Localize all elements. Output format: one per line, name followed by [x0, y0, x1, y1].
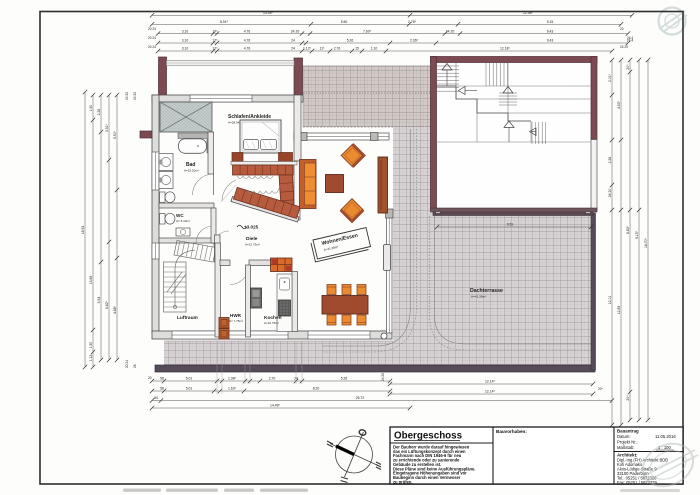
svg-text:Bauantrag: Bauantrag: [617, 429, 639, 434]
svg-text:3.51⁵: 3.51⁵: [105, 123, 109, 132]
svg-text:8.20: 8.20: [313, 387, 320, 391]
svg-text:20⁶: 20⁶: [598, 387, 604, 391]
svg-text:8.91⁵: 8.91⁵: [220, 20, 229, 24]
svg-text:24.4: 24.4: [627, 36, 633, 40]
svg-text:20: 20: [148, 376, 152, 380]
svg-text:Maßstab:: Maßstab:: [617, 445, 634, 450]
svg-text:Luftraum: Luftraum: [177, 315, 198, 321]
svg-text:13.69: 13.69: [89, 276, 93, 285]
svg-text:2.26: 2.26: [608, 157, 612, 164]
svg-text:26: 26: [133, 364, 137, 368]
svg-text:A=10.75m²: A=10.75m²: [264, 321, 279, 325]
svg-text:1.12: 1.12: [89, 355, 93, 362]
svg-text:HWR: HWR: [230, 313, 242, 318]
svg-text:Bauvorhaben:: Bauvorhaben:: [496, 429, 527, 434]
svg-text:4.76: 4.76: [244, 39, 251, 43]
svg-text:5.54: 5.54: [97, 297, 101, 304]
svg-text:A=19.20m²: A=19.20m²: [184, 169, 199, 173]
svg-text:1.12⁵: 1.12⁵: [303, 47, 312, 51]
svg-text:17⁵: 17⁵: [212, 39, 218, 43]
svg-text:17⁵: 17⁵: [212, 47, 218, 51]
svg-text:11⁵: 11⁵: [320, 47, 326, 51]
svg-text:5.50⁵: 5.50⁵: [113, 130, 117, 139]
svg-text:8.83⁵: 8.83⁵: [626, 225, 630, 234]
svg-text:24 20: 24 20: [608, 189, 612, 198]
svg-text:9.51: 9.51: [507, 223, 514, 227]
svg-text:20⁶: 20⁶: [626, 395, 630, 401]
svg-text:2.26: 2.26: [97, 109, 101, 116]
svg-text:1.63⁵: 1.63⁵: [228, 387, 237, 391]
svg-text:25.72: 25.72: [356, 396, 365, 400]
svg-text:6.82⁵: 6.82⁵: [105, 300, 109, 309]
svg-text:58: 58: [160, 377, 164, 381]
svg-text:2.76⁵: 2.76⁵: [408, 20, 417, 24]
svg-text:5.50: 5.50: [341, 20, 348, 24]
svg-text:Dachterrasse: Dachterrasse: [470, 288, 503, 294]
svg-text:18.70⁵: 18.70⁵: [644, 237, 648, 247]
svg-text:24 20: 24 20: [446, 29, 455, 33]
svg-text:Diele: Diele: [246, 236, 258, 242]
svg-text:4.76: 4.76: [244, 47, 251, 51]
svg-text:Schlafen/Ankleide: Schlafen/Ankleide: [228, 114, 271, 120]
svg-text:4.76: 4.76: [244, 29, 251, 33]
svg-text:4.88⁵: 4.88⁵: [113, 305, 117, 314]
svg-text:4.53⁵: 4.53⁵: [617, 100, 621, 109]
svg-text:24 20: 24 20: [125, 92, 129, 100]
svg-text:12.14⁵: 12.14⁵: [485, 380, 495, 384]
svg-text:15: 15: [355, 47, 359, 51]
svg-text:12.48⁵: 12.48⁵: [523, 11, 533, 15]
svg-text:1.50: 1.50: [89, 342, 93, 349]
svg-text:18.93: 18.93: [81, 226, 85, 235]
svg-text:84: 84: [154, 396, 158, 400]
svg-text:A=41.30m²: A=41.30m²: [471, 295, 486, 299]
svg-text:20 24: 20 24: [148, 36, 156, 40]
svg-text:24: 24: [291, 39, 295, 43]
svg-text:9.15⁵: 9.15⁵: [635, 230, 639, 239]
svg-text:5.01: 5.01: [186, 387, 193, 391]
svg-text:24 20: 24 20: [620, 45, 628, 49]
svg-text:2.76: 2.76: [334, 47, 341, 51]
svg-text:1.38⁵: 1.38⁵: [228, 377, 237, 381]
svg-text:Projekt Nr.:: Projekt Nr.:: [617, 440, 638, 445]
svg-text:zu prüfen.: zu prüfen.: [393, 479, 413, 484]
svg-text:1.10: 1.10: [371, 47, 378, 51]
svg-text:3.10: 3.10: [182, 47, 189, 51]
svg-text:24 20: 24 20: [381, 373, 385, 381]
svg-text:2.36⁵: 2.36⁵: [410, 39, 419, 43]
svg-text:20 24: 20 24: [125, 360, 129, 368]
svg-text:24 20: 24 20: [133, 92, 137, 100]
svg-text:12.89: 12.89: [617, 306, 621, 315]
svg-text:2.01⁵: 2.01⁵: [608, 73, 612, 82]
svg-text:24 20: 24 20: [291, 29, 300, 33]
svg-text:2.70: 2.70: [269, 377, 276, 381]
svg-text:20 24: 20 24: [148, 45, 156, 49]
svg-text:20: 20: [620, 27, 624, 31]
svg-text:3.10: 3.10: [182, 39, 189, 43]
svg-text:1.50: 1.50: [89, 105, 93, 112]
svg-text:11.05.2016: 11.05.2016: [655, 434, 676, 439]
svg-text:12.18⁵: 12.18⁵: [500, 47, 510, 51]
svg-text:A=12.75m²: A=12.75m²: [245, 243, 260, 247]
svg-text:12.14⁵: 12.14⁵: [485, 390, 495, 394]
svg-text:14.49⁵: 14.49⁵: [270, 404, 280, 408]
svg-text:Datum:: Datum:: [617, 434, 631, 439]
svg-text:A= 5.10m²: A= 5.10m²: [176, 219, 190, 223]
svg-text:WC: WC: [176, 213, 184, 218]
svg-text:24: 24: [291, 47, 295, 51]
svg-text:9.15: 9.15: [547, 20, 554, 24]
svg-text:17⁵: 17⁵: [212, 29, 218, 33]
svg-text:5.26: 5.26: [347, 39, 354, 43]
svg-text:Obergeschoss: Obergeschoss: [394, 431, 463, 442]
svg-text:+3.025: +3.025: [244, 225, 259, 230]
svg-text:9.43: 9.43: [547, 29, 554, 33]
svg-text:12.01: 12.01: [608, 296, 612, 305]
svg-text:5.01: 5.01: [186, 377, 193, 381]
svg-text:14.49⁵: 14.49⁵: [263, 11, 273, 15]
svg-text:7.60⁵: 7.60⁵: [363, 29, 372, 33]
svg-text:A= 7.75m²: A= 7.75m²: [229, 319, 243, 323]
svg-text:9.43: 9.43: [547, 39, 554, 43]
svg-text:58: 58: [160, 387, 164, 391]
svg-text:5.26: 5.26: [341, 377, 348, 381]
svg-text:20 24: 20 24: [148, 27, 156, 31]
svg-text:Bad: Bad: [186, 162, 195, 168]
svg-text:3.10: 3.10: [182, 29, 189, 33]
svg-text:20⁶: 20⁶: [626, 64, 630, 70]
